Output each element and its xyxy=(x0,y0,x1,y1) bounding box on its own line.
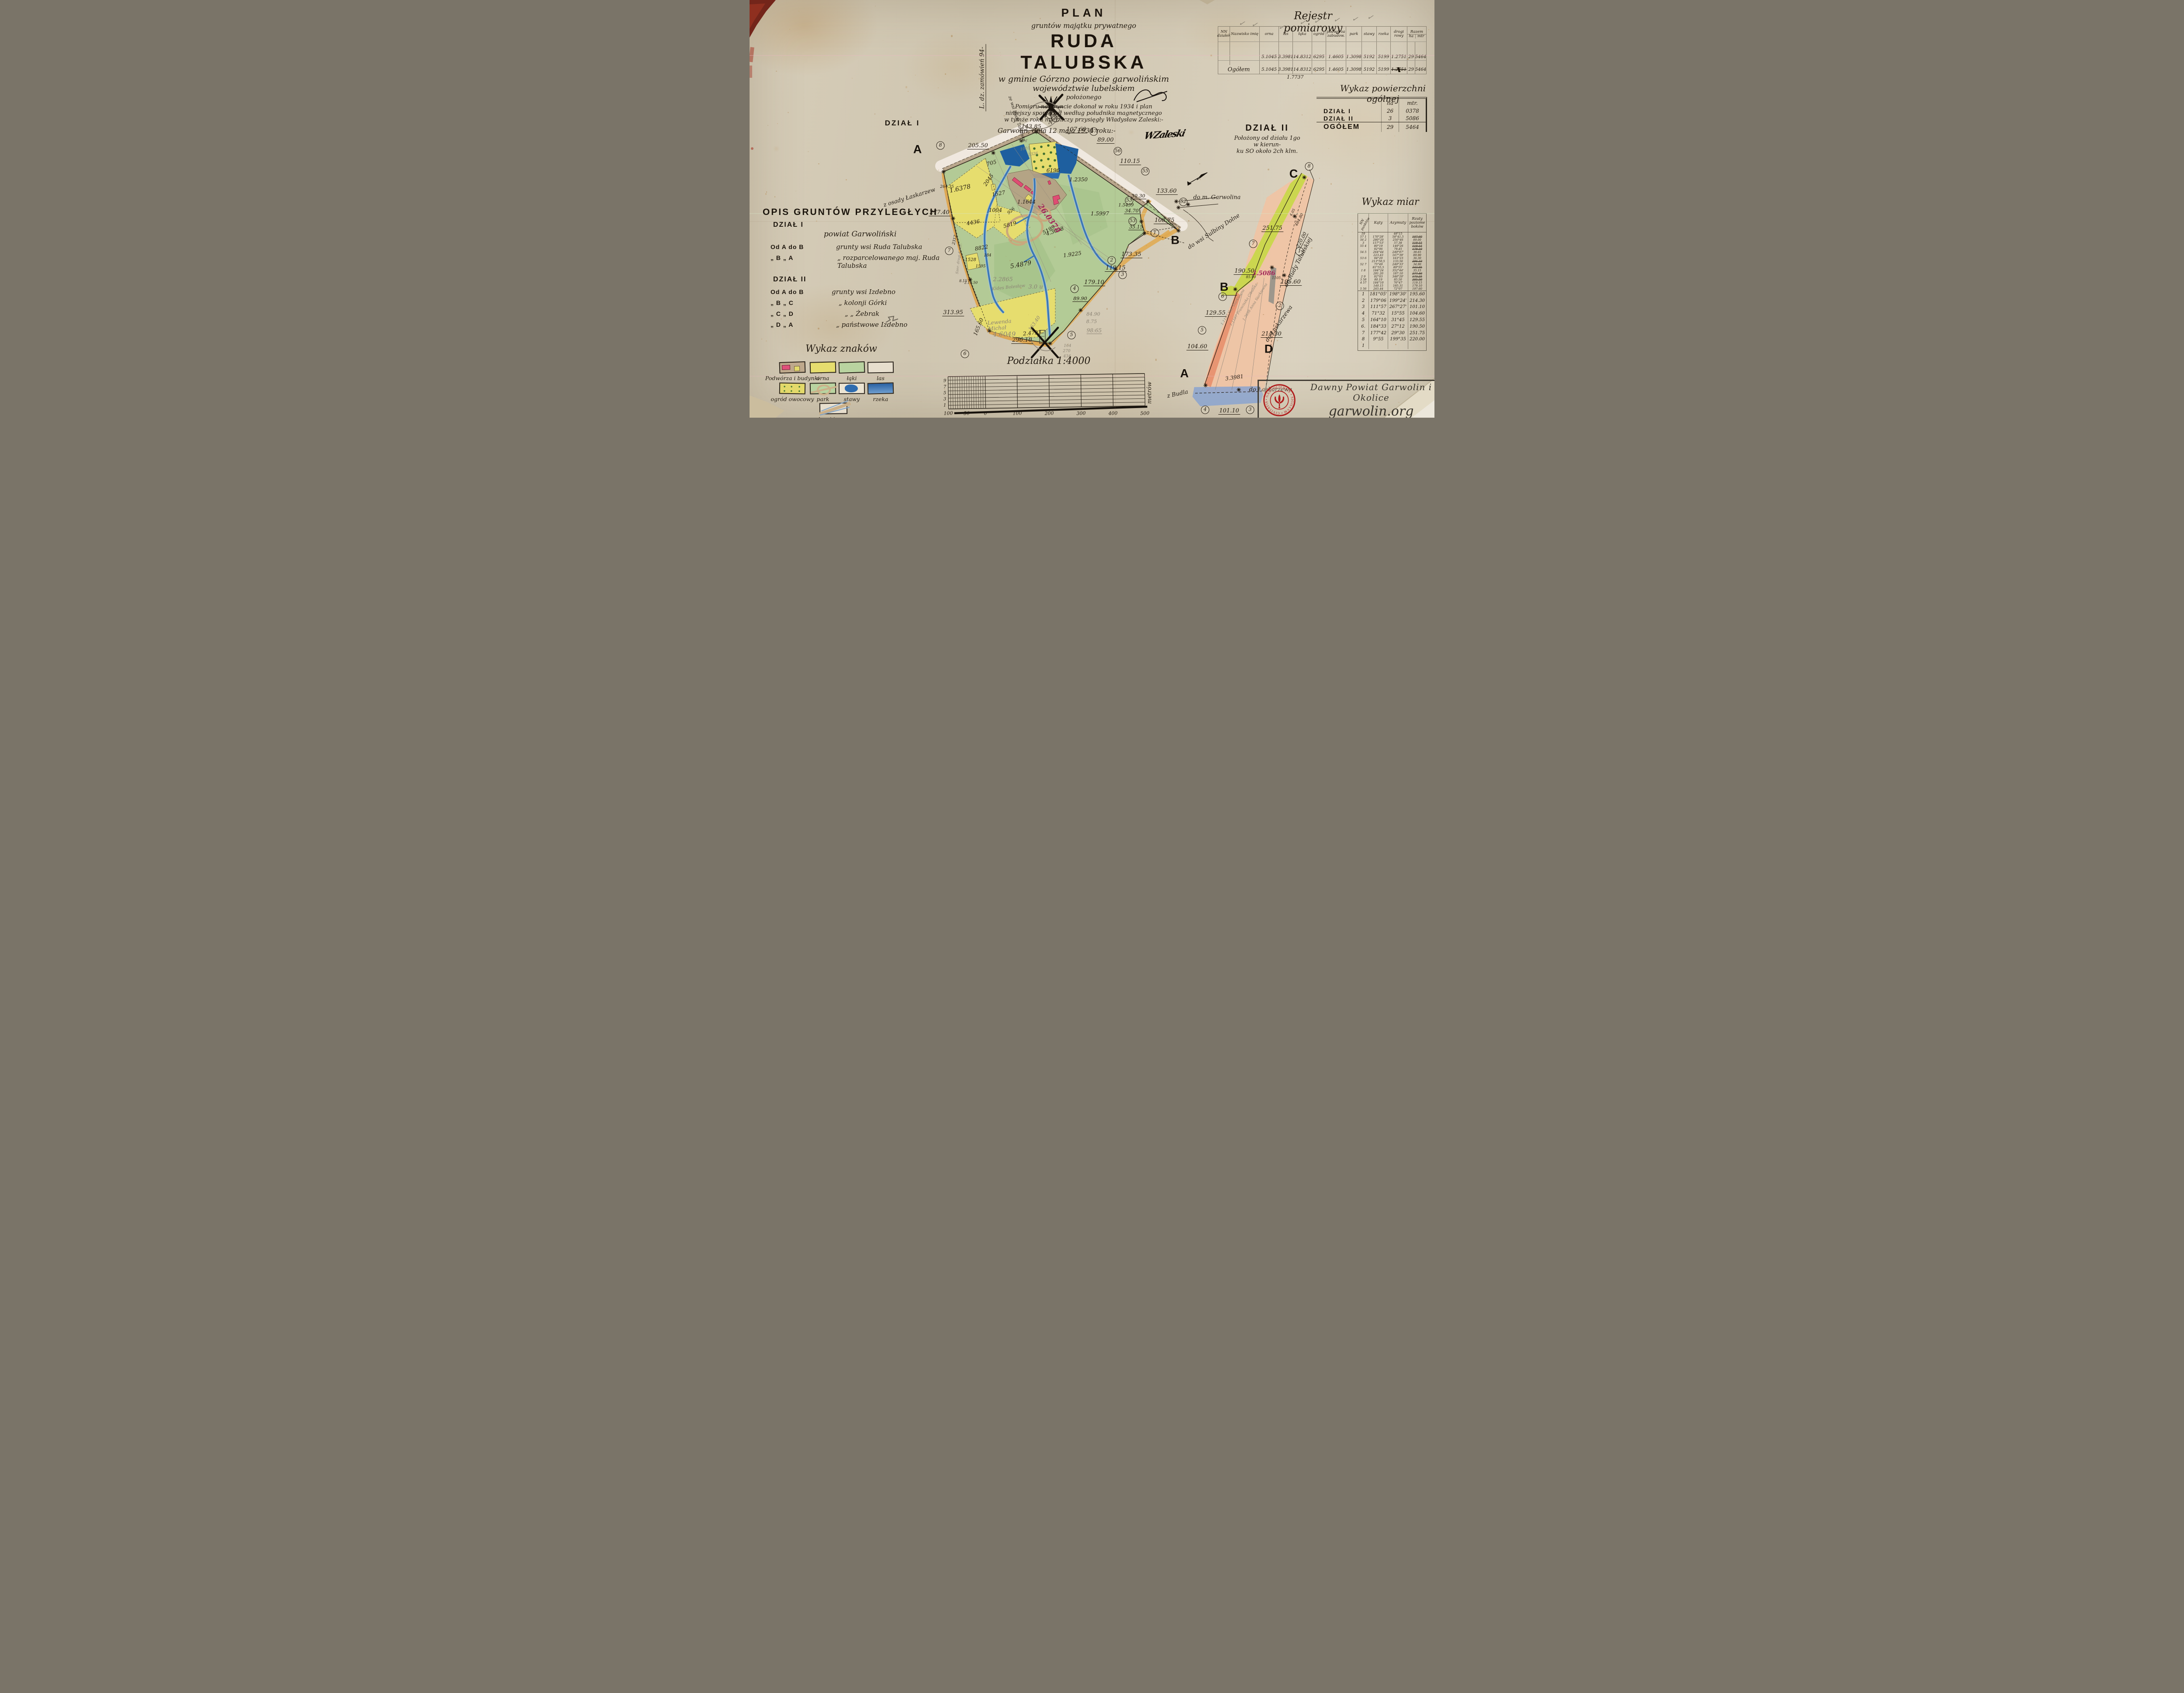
opis-row-desc: „ kolonji Górki xyxy=(839,299,887,307)
legend-label-farmyard: Podwórza i budynki xyxy=(765,375,819,381)
legend-swatch-las xyxy=(867,361,894,373)
opis-row-abbr: „ B „ A xyxy=(771,254,811,261)
legend-swatch-stawy xyxy=(839,383,865,395)
opis-dzial1-label: DZIAŁ I xyxy=(773,221,950,229)
surveyor-note: Pomiaru na gruncie dokonał w roku 1934 i… xyxy=(985,104,1182,123)
legend-swatch-orna xyxy=(810,361,836,374)
doc-subtitle3: województwie lubelskiem xyxy=(985,84,1182,93)
opis-row-desc: „ „ Żebrak xyxy=(845,310,879,318)
opis-row-abbr: Od A do B xyxy=(771,243,819,250)
note-line2: niniejszy sporządził według południka ma… xyxy=(985,110,1182,117)
opis-row-desc: grunty wsi Izdebno xyxy=(832,288,895,296)
opis-row-abbr: Od A do B xyxy=(771,288,819,295)
dzial2-desc2: ku SO około 2ch klm. xyxy=(1232,148,1302,155)
map-sheet: PLAN gruntów majątku prywatnego RUDA TAL… xyxy=(750,0,1434,418)
doc-subtitle1: gruntów majątku prywatnego xyxy=(985,21,1182,30)
legend-swatch-park xyxy=(810,382,836,394)
opis-dzial2-label: DZIAŁ II xyxy=(773,276,950,284)
legend-label-drogi: drogi i rowy xyxy=(817,416,850,418)
seal-ring-text: • GARVOLIENSIS • SIGILLVM • CIVITATIS • xyxy=(1261,381,1295,415)
opis-row-desc: grunty wsi Ruda Talubska xyxy=(836,243,922,251)
legend-label-las: las xyxy=(877,375,885,381)
legend-label-orchard: ogród owocowy xyxy=(771,396,814,402)
dzial2-title: DZIAŁ II xyxy=(1232,123,1302,133)
opis-row: „ B „ C„ kolonji Górki xyxy=(771,299,950,307)
seal-tulip-icon xyxy=(1275,394,1284,408)
opis-dzial1-rows: Od A do Bgrunty wsi Ruda Talubska„ B „ A… xyxy=(763,243,950,270)
legend-title: Wykaz znaków xyxy=(802,343,881,354)
scalebar-graphic xyxy=(948,374,1147,413)
doc-subtitle2: w gminie Górzno powiecie garwolińskim xyxy=(985,74,1182,84)
scalebar-title: Podziałka 1:4000 xyxy=(1003,356,1095,367)
note-line3: w tymże roku mierniczy przysięgły Władys… xyxy=(985,117,1182,123)
opis-row: Od A do Bgrunty wsi Ruda Talubska xyxy=(771,243,950,251)
svg-text:• GARVOLIENSIS • SIGILLVM • CI: • GARVOLIENSIS • SIGILLVM • CIVITATIS • xyxy=(1261,381,1295,415)
strip-parcels xyxy=(1204,175,1314,393)
legend-label-orna: orna xyxy=(816,375,829,381)
legend-label-laki: łąki xyxy=(847,375,857,381)
opis-row-abbr: „ B „ C xyxy=(771,299,819,306)
dzial2-header: DZIAŁ II Położony od działu 1go w kierun… xyxy=(1232,123,1302,155)
legend-label-park: park xyxy=(816,396,829,402)
opis-title: OPIS GRUNTÓW PRZYLEGŁYCH xyxy=(763,207,950,218)
opis-dzial1-sub: powiat Garwoliński xyxy=(824,230,950,239)
doc-title: PLAN xyxy=(985,6,1182,20)
opis-row: „ B „ A„ rozparcelowanego maj. Ruda Talu… xyxy=(771,254,950,270)
watermark-text: Dawny Powiat Garwolin i Okolice garwolin… xyxy=(1298,382,1434,418)
legend-swatch-laki xyxy=(839,361,865,374)
legend-swatch-orchard xyxy=(779,382,805,394)
opis-dzial2-rows: Od A do Bgrunty wsi Izdebno„ B „ C„ kolo… xyxy=(763,288,950,329)
note-line1: Pomiaru na gruncie dokonał w roku 1934 i… xyxy=(985,104,1182,110)
strip-river xyxy=(1192,386,1263,406)
doc-subtitle4: położonego xyxy=(985,94,1182,101)
rejestr-correction: 1.7737 xyxy=(1287,74,1304,80)
opis-row-abbr: „ D „ A xyxy=(771,321,819,328)
opis-row: „ D „ A„ państwowe Izdebno xyxy=(771,321,950,329)
estate-name: RUDA TALUBSKA xyxy=(985,31,1182,73)
opis-section: OPIS GRUNTÓW PRZYLEGŁYCH DZIAŁ I powiat … xyxy=(763,207,950,329)
powierzchnia-title: Wykaz powierzchni ogólnej xyxy=(1330,83,1434,104)
dzial1-header: DZIAŁ I xyxy=(876,119,929,128)
rejestr-title: Rejestr pomiarowy xyxy=(1265,10,1361,34)
compass-north-arrow xyxy=(1187,173,1207,186)
opis-row-abbr: „ C „ D xyxy=(771,310,819,317)
miary-title: Wykaz miar xyxy=(1358,197,1423,208)
legend-swatch-drogi xyxy=(819,402,847,414)
title-block: PLAN gruntów majątku prywatnego RUDA TAL… xyxy=(985,6,1182,135)
opis-row: Od A do Bgrunty wsi Izdebno xyxy=(771,288,950,296)
dzial2-desc1: Położony od działu 1go w kierun- xyxy=(1232,135,1302,148)
opis-row-desc: „ rozparcelowanego maj. Ruda Talubska xyxy=(837,254,950,270)
watermark-line2: garwolin.org xyxy=(1298,404,1434,418)
watermark-line1: Dawny Powiat Garwolin i Okolice xyxy=(1298,382,1434,403)
order-number: L. dz. zamówień 94- xyxy=(979,44,986,111)
legend-label-rzeka: rzeka xyxy=(873,396,888,402)
opis-row-desc: „ państwowe Izdebno xyxy=(836,321,907,329)
legend-swatch-farmyard xyxy=(779,361,806,374)
opis-row: „ C „ D„ „ Żebrak xyxy=(771,310,950,318)
legend-swatch-rzeka xyxy=(867,382,894,395)
seal-garwolin: • GARVOLIENSIS • SIGILLVM • CIVITATIS • xyxy=(1261,381,1298,418)
watermark-banner: • GARVOLIENSIS • SIGILLVM • CIVITATIS • … xyxy=(1258,380,1434,418)
